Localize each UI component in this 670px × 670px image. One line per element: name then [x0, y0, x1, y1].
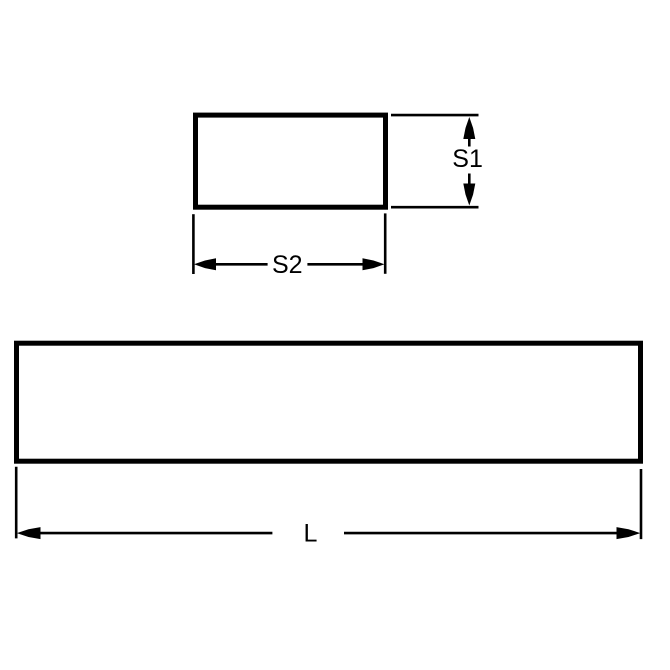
svg-text:S1: S1	[452, 145, 483, 173]
svg-text:S2: S2	[272, 251, 303, 279]
svg-text:L: L	[304, 519, 318, 547]
